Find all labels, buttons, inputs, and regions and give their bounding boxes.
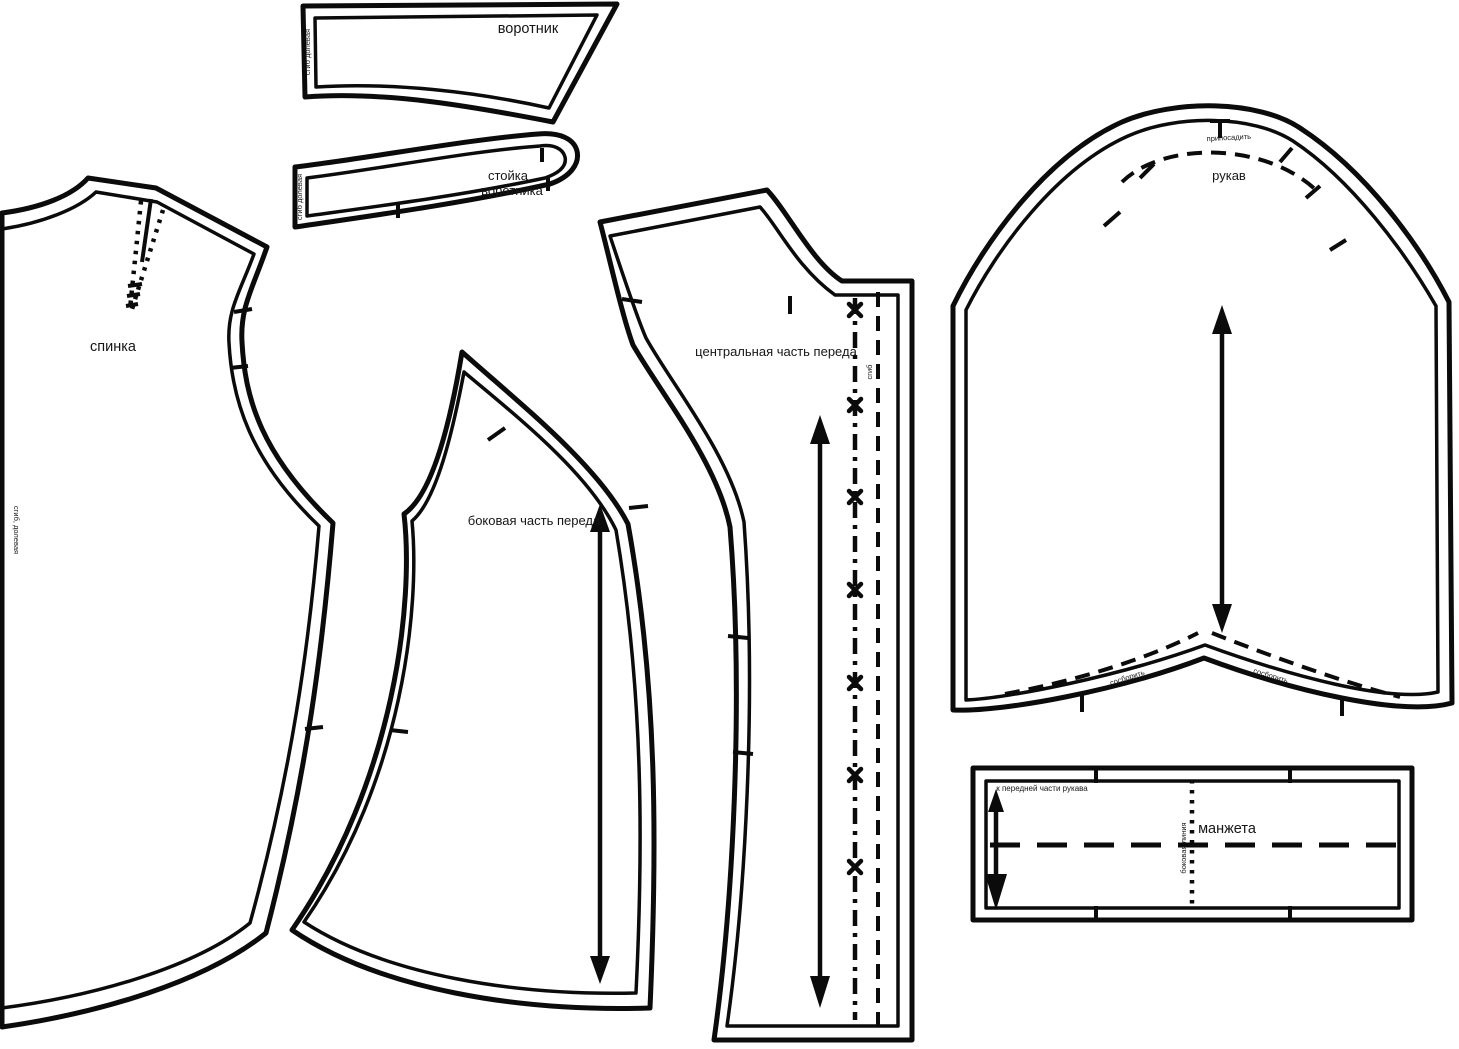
collar-cut-line <box>303 4 617 122</box>
piece-back: спинка сгиб, долевая <box>2 178 333 1027</box>
back-label: спинка <box>90 339 137 355</box>
piece-collar: воротник сгиб долевая <box>303 4 617 122</box>
cuff-side-line-text: боковая линия <box>1179 822 1188 873</box>
center-front-fold-text: сгиб <box>865 365 874 380</box>
piece-sleeve: рукав припосадить сосборить сосборить <box>953 106 1452 716</box>
piece-collar-stand: стойка воротника сгиб долевая <box>295 134 578 227</box>
collar-stand-fold-grain-text: сгиб долевая <box>295 174 304 220</box>
sewing-pattern-canvas: воротник сгиб долевая стойка воротника с… <box>0 0 1459 1049</box>
back-fold-grain-text: сгиб, долевая <box>12 506 21 554</box>
center-front-label: центральная часть переда <box>695 344 857 359</box>
sewing-pattern-sheet: воротник сгиб долевая стойка воротника с… <box>0 0 1459 1049</box>
collar-stand-label-line2: воротника <box>481 183 544 198</box>
piece-cuff: манжета к передней части рукава боковая … <box>973 768 1412 920</box>
side-front-label: боковая часть переда <box>468 513 601 528</box>
cuff-note-text: к передней части рукава <box>996 784 1088 793</box>
sleeve-label: рукав <box>1212 168 1246 183</box>
cuff-label: манжета <box>1198 821 1257 837</box>
collar-label: воротник <box>498 21 559 37</box>
piece-side-front: боковая часть переда <box>292 352 654 1008</box>
sleeve-cut-line <box>953 106 1452 710</box>
collar-fold-grain-text: сгиб долевая <box>303 29 312 75</box>
collar-stand-label-line1: стойка <box>488 168 529 183</box>
back-cut-line <box>2 178 333 1027</box>
